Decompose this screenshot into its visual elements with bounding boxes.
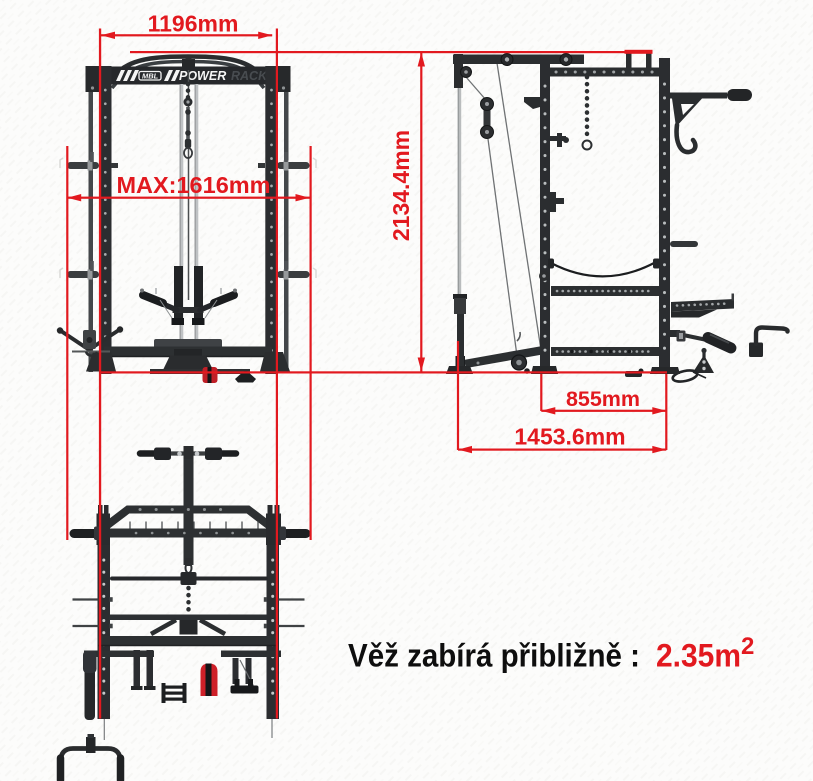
svg-text:MAX:1616mm: MAX:1616mm	[116, 172, 270, 198]
svg-text:855mm: 855mm	[566, 387, 640, 411]
svg-text:2134.4mm: 2134.4mm	[388, 130, 414, 241]
svg-text:Věž zabírá přibližně :2.35m2: Věž zabírá přibližně :2.35m2	[348, 633, 754, 674]
svg-text:POWER: POWER	[179, 69, 226, 83]
svg-text:1453.6mm: 1453.6mm	[514, 424, 625, 450]
svg-text:1196mm: 1196mm	[148, 11, 239, 37]
svg-text:RACK: RACK	[231, 69, 268, 83]
svg-text:MBL: MBL	[142, 71, 159, 80]
